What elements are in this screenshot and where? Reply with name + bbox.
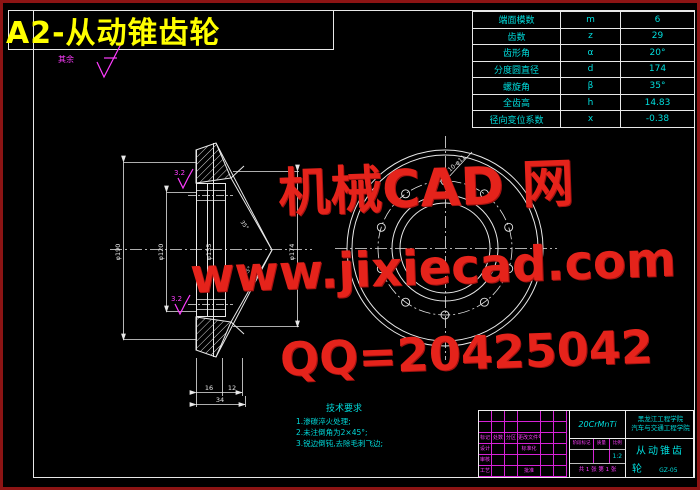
dim-flange-od: φ190 [114, 244, 122, 261]
material-cell: 20CrMnTi [569, 411, 626, 439]
watermark-line-1: 机械CAD 网 [277, 141, 575, 226]
param-symbol: β [561, 78, 621, 95]
roughness-value-2: 3.2 [171, 295, 182, 303]
stage-block: 阶段标记 质量 比例 1:2 共 1 张 第 1 张 [569, 439, 626, 477]
tb-label-approve: 批准 [518, 466, 541, 477]
tb-label-stage: 阶段标记 [570, 439, 594, 449]
param-label: 端面模数 [473, 12, 561, 29]
param-symbol: h [561, 94, 621, 111]
tb-label-mark: 标记 [479, 433, 492, 444]
param-value: 174 [621, 61, 695, 78]
surface-default-label: 其余 [58, 54, 74, 64]
dim-16: 16 [205, 384, 213, 392]
tb-scale-value: 1:2 [610, 450, 625, 463]
param-value: 6 [621, 12, 695, 29]
roughness-value-1: 3.2 [174, 169, 185, 177]
technical-note-item: 2.未注倒角为2×45°; [296, 427, 471, 438]
part-name-line-2: 轮 [632, 460, 642, 475]
tb-sheet-no: 第 1 张 [598, 467, 616, 473]
title-block: 标记 处数 分区 更改文件号 设计 标准化 审核 工艺 批准 20CrMnTi … [478, 410, 694, 478]
param-value: 20° [621, 45, 695, 62]
param-label: 齿形角 [473, 45, 561, 62]
tb-label-design: 设计 [479, 444, 492, 455]
param-symbol: α [561, 45, 621, 62]
param-label: 全齿高 [473, 94, 561, 111]
tb-label-process: 工艺 [479, 466, 492, 477]
tb-label-zone: 分区 [505, 433, 518, 444]
dim-12: 12 [228, 384, 236, 392]
param-value: 14.83 [621, 94, 695, 111]
school-line-2: 汽车与交通工程学院 [626, 424, 695, 433]
param-row: 径向变位系数x-0.38 [473, 111, 695, 128]
gear-parameter-table: 端面模数m6 齿数z29 齿形角α20° 分度圆直径d174 螺旋角β35° 全… [472, 11, 695, 128]
param-value: -0.38 [621, 111, 695, 128]
tb-label-standard: 标准化 [518, 444, 541, 455]
tb-label-weight: 质量 [594, 439, 609, 449]
param-symbol: z [561, 28, 621, 45]
param-row: 全齿高h14.83 [473, 94, 695, 111]
tb-label-audit: 审核 [479, 455, 492, 466]
tb-label-count: 处数 [492, 433, 505, 444]
param-value: 35° [621, 78, 695, 95]
param-label: 螺旋角 [473, 78, 561, 95]
roughness-texts: 其余 3.2 3.2 [58, 54, 185, 303]
dim-bore: φ120 [157, 244, 165, 261]
dim-34: 34 [216, 396, 224, 404]
title-block-revision-grid: 标记 处数 分区 更改文件号 设计 标准化 审核 工艺 批准 [479, 411, 569, 477]
technical-notes: 技术要求 1.渗碳淬火处理; 2.未注倒角为2×45°; 3.锐边倒钝,去除毛刺… [296, 401, 471, 449]
school-line-1: 黑龙江工程学院 [626, 415, 695, 424]
param-label: 齿数 [473, 28, 561, 45]
tb-label-scale: 比例 [610, 439, 625, 449]
page-title: A2-从动锥齿轮 [6, 8, 221, 52]
param-row: 齿数z29 [473, 28, 695, 45]
school-cell: 黑龙江工程学院 汽车与交通工程学院 [626, 411, 695, 439]
roughness-symbols [97, 42, 193, 314]
param-value: 29 [621, 28, 695, 45]
part-name-cell: 从动锥齿 轮 GZ-05 [626, 439, 695, 477]
drawing-number: GZ-05 [659, 467, 677, 474]
param-row: 分度圆直径d174 [473, 61, 695, 78]
param-label: 分度圆直径 [473, 61, 561, 78]
param-label: 径向变位系数 [473, 111, 561, 128]
technical-notes-title: 技术要求 [326, 401, 471, 414]
param-row: 端面模数m6 [473, 12, 695, 29]
part-name-line-1: 从动锥齿 [636, 442, 695, 457]
param-row: 螺旋角β35° [473, 78, 695, 95]
dim-angle-1: 35° [239, 220, 250, 232]
param-row: 齿形角α20° [473, 45, 695, 62]
cad-canvas: φ190 φ120 φ135 φ174 16 12 34 35° 45° [0, 0, 700, 490]
tb-sheets-total: 共 1 张 [579, 467, 597, 473]
tb-label-change-file: 更改文件号 [518, 433, 541, 444]
technical-note-item: 3.锐边倒钝,去除毛刺飞边; [296, 438, 471, 449]
param-symbol: x [561, 111, 621, 128]
param-symbol: m [561, 12, 621, 29]
technical-note-item: 1.渗碳淬火处理; [296, 416, 471, 427]
param-symbol: d [561, 61, 621, 78]
